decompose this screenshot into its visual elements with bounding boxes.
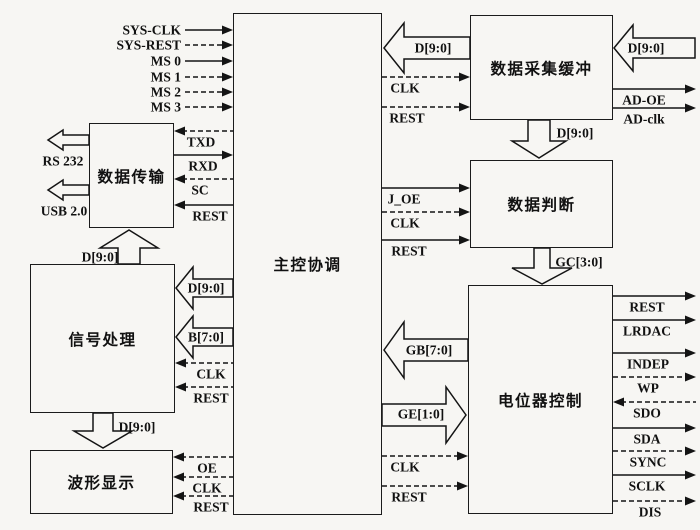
signal-label-pot-sda: SDA [633, 432, 660, 446]
block-label-data-judge: 数据判断 [507, 193, 575, 215]
block-daq-buffer: 数据采集缓冲 [470, 15, 613, 120]
signal-label-ad-oe: AD-OE [622, 93, 666, 107]
block-label-daq-buffer: 数据采集缓冲 [490, 57, 592, 79]
signal-label-wf-clk: CLK [192, 481, 221, 495]
signal-label-pot-sdo: SDO [633, 406, 661, 420]
signal-label-sp-clk: CLK [196, 367, 225, 381]
signal-label-rxd: RXD [188, 159, 217, 173]
arrowhead-sc [174, 175, 185, 184]
signal-label-ms2: MS 2 [151, 85, 181, 99]
signal-label-judge-rest: REST [391, 244, 426, 258]
bus-label-usb-out: USB 2.0 [41, 204, 88, 218]
bus-label-gb-left: GB[7:0] [406, 343, 453, 357]
arrowhead-daq-rest [459, 103, 470, 112]
signal-label-judge-clk: CLK [390, 216, 419, 230]
arrowhead-judge-joe [459, 184, 470, 193]
arrowhead-pot-clk [457, 452, 468, 461]
block-signal-processing: 信号处理 [30, 264, 175, 413]
signal-label-pot-rest-out: REST [629, 300, 664, 314]
signal-label-ms0: MS 0 [151, 54, 181, 68]
signal-label-wf-rest: REST [193, 500, 228, 514]
arrowhead-wf-rest [173, 492, 184, 501]
arrowhead-rxd [222, 151, 233, 160]
signal-label-ms1: MS 1 [151, 70, 181, 84]
block-label-data-transfer: 数据传输 [97, 165, 165, 187]
arrowhead-pot-dis [685, 497, 696, 506]
arrowhead-ms0 [222, 57, 233, 66]
block-label-pot-control: 电位器控制 [498, 389, 583, 411]
bus-label-sp-b-in: B[7:0] [188, 330, 224, 344]
signal-label-pot-indep: INDEP [627, 357, 669, 371]
bus-label-dt-d-up: D[9:0] [82, 250, 119, 264]
arrowhead-pot-sclk [685, 471, 696, 480]
arrowhead-ad-oe [685, 85, 696, 94]
signal-label-sys-rest: SYS-REST [116, 38, 181, 52]
arrowhead-wf-clk [173, 473, 184, 482]
bus-label-adc-d-in: D[9:0] [628, 41, 665, 55]
block-label-waveform-display: 波形显示 [67, 471, 135, 493]
arrowhead-pot-sync [685, 447, 696, 456]
arrowhead-judge-clk [459, 208, 470, 217]
arrowhead-ms3 [222, 103, 233, 112]
bus-label-rs232-out: RS 232 [43, 154, 84, 168]
arrowhead-ms2 [222, 88, 233, 97]
signal-label-pot-dis: DIS [639, 505, 662, 519]
arrowhead-pot-rest-out [685, 292, 696, 301]
arrowhead-ms1 [222, 73, 233, 82]
block-label-signal-processing: 信号处理 [68, 328, 136, 350]
arrowhead-dt-rest [174, 201, 185, 210]
signal-label-txd: TXD [187, 135, 216, 149]
arrowhead-sp-clk [175, 359, 186, 368]
arrowhead-txd [174, 127, 185, 136]
block-waveform-display: 波形显示 [30, 450, 173, 514]
arrowhead-sp-rest [175, 383, 186, 392]
signal-label-wf-oe: OE [197, 461, 217, 475]
arrowhead-pot-wp [685, 373, 696, 382]
arrowhead-pot-sdo [613, 398, 624, 407]
signal-label-ad-clk: AD-clk [623, 112, 664, 126]
block-pot-control: 电位器控制 [468, 285, 613, 514]
signal-label-judge-joe: J_OE [387, 192, 420, 206]
signal-label-pot-clk: CLK [390, 460, 419, 474]
arrowhead-pot-rest [457, 482, 468, 491]
bus-label-wf-d-down: D[9:0] [119, 420, 156, 434]
arrowhead-pot-lrdac [685, 316, 696, 325]
bus-label-ge-right: GE[1:0] [398, 407, 445, 421]
signal-label-sys-clk: SYS-CLK [122, 23, 181, 37]
signal-label-sc: SC [191, 183, 208, 197]
arrowhead-sys-clk [222, 26, 233, 35]
arrowhead-judge-rest [459, 236, 470, 245]
bus-label-sp-d-in: D[9:0] [188, 281, 225, 295]
signal-label-pot-sclk: SCLK [629, 479, 666, 493]
arrowhead-pot-indep [685, 349, 696, 358]
signal-label-pot-sync: SYNC [630, 455, 667, 469]
signal-label-pot-wp: WP [637, 381, 659, 395]
signal-label-pot-rest: REST [391, 490, 426, 504]
bus-label-judge-d-down: D[9:0] [557, 126, 594, 140]
signal-label-daq-clk: CLK [390, 81, 419, 95]
block-label-main-control: 主控协调 [273, 253, 341, 275]
arrowhead-ad-clk [685, 104, 696, 113]
signal-label-dt-rest: REST [192, 209, 227, 223]
signal-label-pot-lrdac: LRDAC [623, 324, 671, 338]
arrowhead-pot-sda [685, 424, 696, 433]
arrowhead-sys-rest [222, 41, 233, 50]
bus-label-gc-down: GC[3:0] [555, 255, 602, 269]
signal-label-sp-rest: REST [193, 391, 228, 405]
block-main-control: 主控协调 [233, 13, 382, 515]
bus-label-mc-d-in: D[9:0] [415, 41, 452, 55]
signal-label-daq-rest: REST [389, 111, 424, 125]
arrowhead-daq-clk [459, 73, 470, 82]
arrowhead-wf-oe [173, 453, 184, 462]
bus-arrow-rs232-out [48, 130, 89, 150]
signal-label-ms3: MS 3 [151, 100, 181, 114]
block-diagram: 主控协调数据传输信号处理波形显示数据采集缓冲数据判断电位器控制SYS-CLKSY… [0, 0, 700, 530]
bus-arrow-usb-out [48, 180, 89, 200]
block-data-transfer: 数据传输 [89, 123, 174, 228]
block-data-judge: 数据判断 [470, 160, 613, 248]
